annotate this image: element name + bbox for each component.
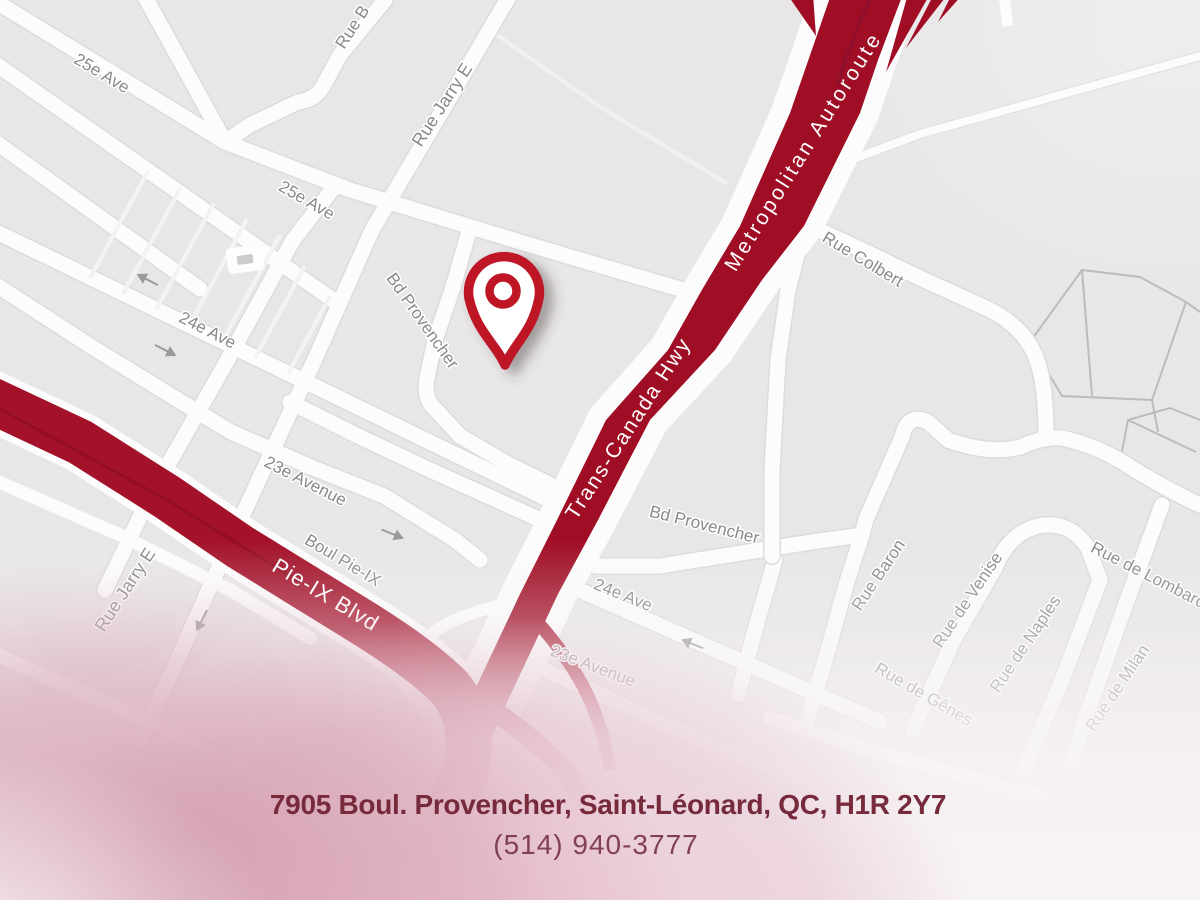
svg-text:Bd Provencher: Bd Provencher [647, 502, 761, 548]
svg-text:Rue de Venise: Rue de Venise [929, 549, 1007, 651]
svg-text:Rue Jarry E: Rue Jarry E [408, 59, 477, 150]
